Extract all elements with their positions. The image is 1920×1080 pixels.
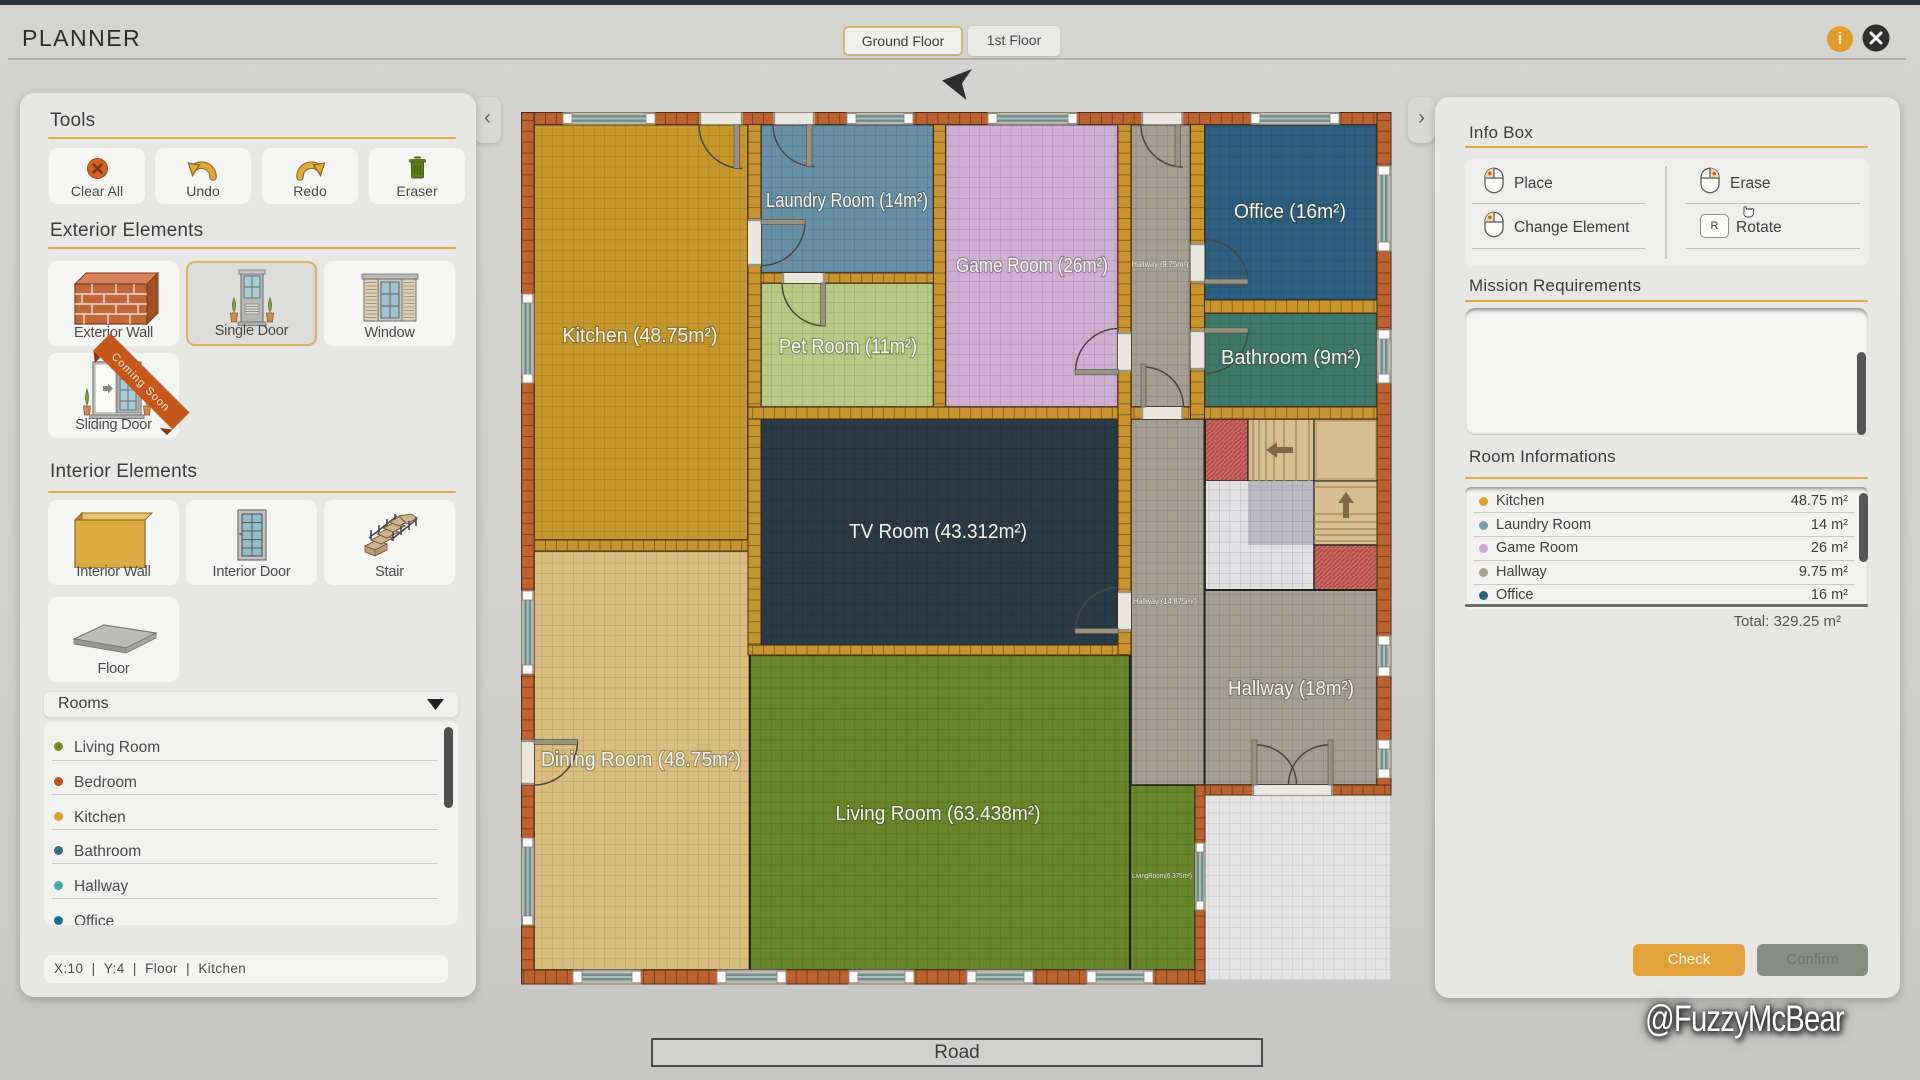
svg-text:Game Room (26m²): Game Room (26m²): [956, 254, 1108, 277]
svg-text:Hallway (9.75m²): Hallway (9.75m²): [1132, 259, 1189, 269]
svg-text:LivingRoom(6.375m²): LivingRoom(6.375m²): [1132, 873, 1192, 880]
svg-text:Hallway (14.875m²): Hallway (14.875m²): [1133, 596, 1197, 606]
svg-text:Office (16m²): Office (16m²): [1234, 200, 1346, 223]
svg-text:Bathroom (9m²): Bathroom (9m²): [1221, 346, 1361, 369]
svg-text:TV Room (43.312m²): TV Room (43.312m²): [849, 520, 1027, 543]
svg-text:Living Room (63.438m²): Living Room (63.438m²): [836, 802, 1041, 825]
svg-text:Kitchen (48.75m²): Kitchen (48.75m²): [563, 324, 718, 347]
svg-text:Dining Room (48.75m²): Dining Room (48.75m²): [541, 748, 741, 771]
svg-text:Pet Room (11m²): Pet Room (11m²): [779, 335, 917, 358]
svg-text:Coming Soon: Coming Soon: [109, 351, 172, 414]
svg-text:Laundry Room (14m²): Laundry Room (14m²): [766, 189, 928, 212]
svg-text:Hallway (18m²): Hallway (18m²): [1228, 677, 1354, 700]
